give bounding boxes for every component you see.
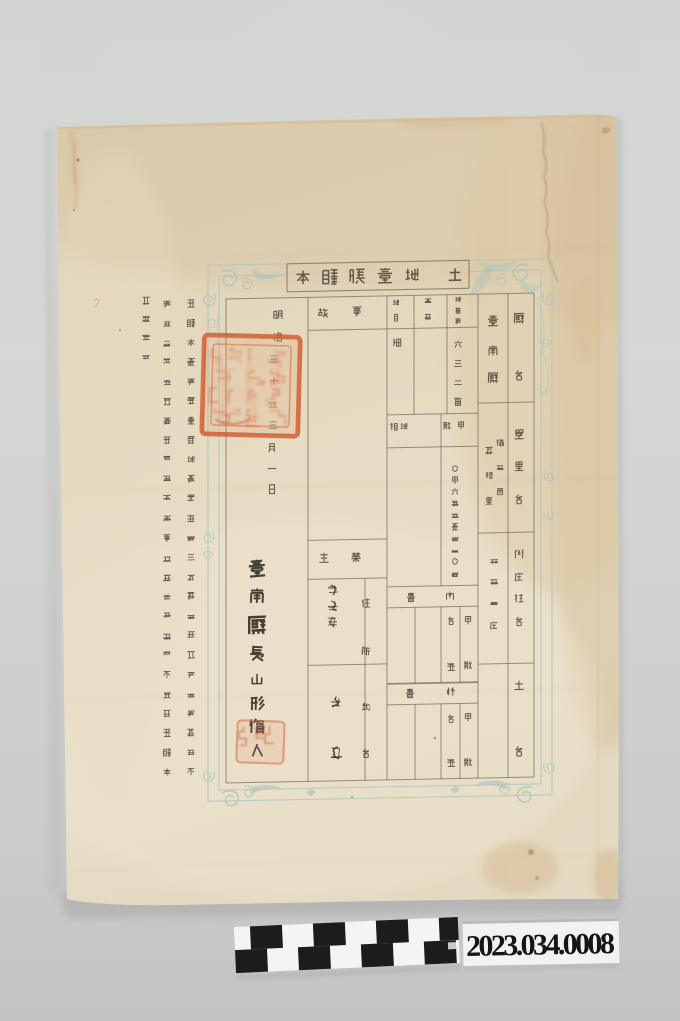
svg-text:2023.034.0008: 2023.034.0008	[466, 927, 614, 963]
